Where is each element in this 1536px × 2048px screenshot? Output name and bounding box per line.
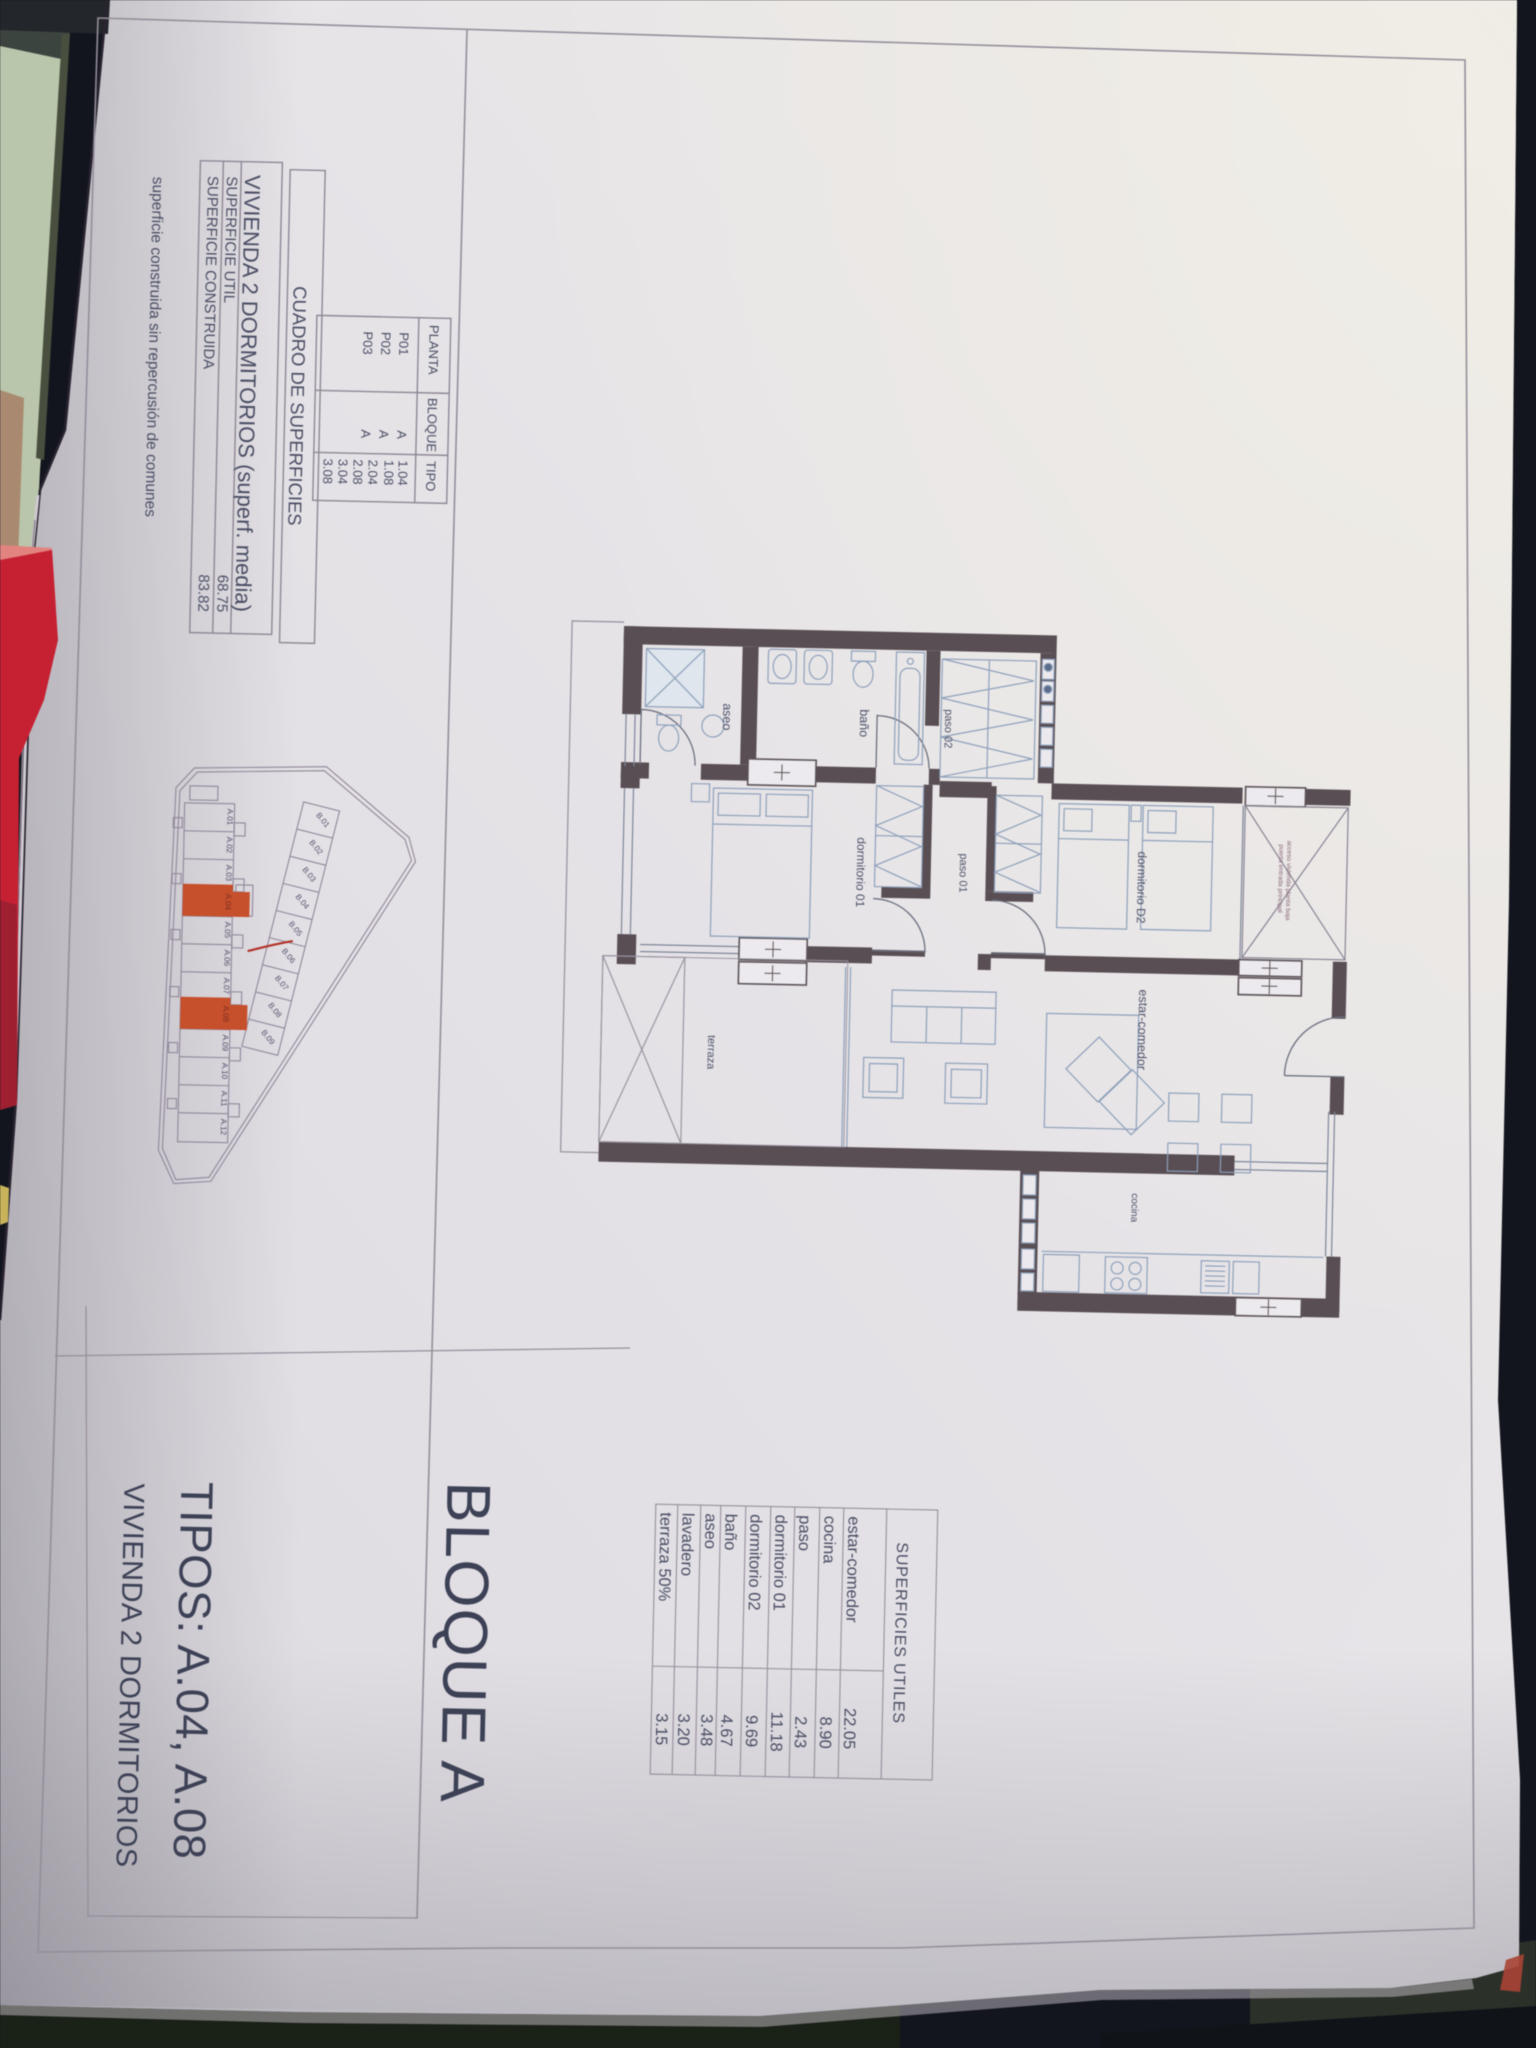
svg-text:TIPOS: A.04, A.08: TIPOS: A.04, A.08 — [164, 1481, 223, 1860]
svg-text:A.09: A.09 — [220, 1035, 229, 1052]
svg-text:A: A — [358, 429, 373, 438]
svg-text:A.05: A.05 — [223, 922, 232, 939]
svg-text:BLOQUE A: BLOQUE A — [427, 1481, 503, 1804]
svg-text:SUPERFICIE UTIL: SUPERFICIE UTIL — [220, 176, 240, 303]
svg-text:3.08: 3.08 — [320, 458, 336, 484]
svg-text:2.43: 2.43 — [791, 1716, 810, 1748]
svg-text:3.48: 3.48 — [697, 1714, 716, 1746]
svg-text:baño: baño — [857, 709, 872, 737]
svg-text:PLANTA: PLANTA — [426, 325, 442, 375]
svg-text:dormitorio 01: dormitorio 01 — [770, 1515, 790, 1612]
svg-text:lavadero: lavadero — [677, 1513, 696, 1577]
svg-text:baño: baño — [721, 1514, 740, 1551]
svg-text:A.01: A.01 — [225, 809, 234, 826]
svg-text:83.82: 83.82 — [194, 574, 212, 612]
svg-text:A: A — [376, 430, 391, 439]
svg-text:estar-comedor: estar-comedor — [1135, 989, 1151, 1070]
svg-text:estar-comedor: estar-comedor — [842, 1516, 862, 1623]
svg-text:dormitorio 01: dormitorio 01 — [853, 837, 869, 908]
svg-text:A.07: A.07 — [222, 978, 231, 995]
svg-text:9.69: 9.69 — [742, 1715, 761, 1747]
svg-text:paso: paso — [795, 1515, 814, 1551]
svg-text:3.04: 3.04 — [335, 459, 351, 485]
svg-text:A.06: A.06 — [222, 950, 231, 967]
svg-text:paso 02: paso 02 — [941, 709, 954, 748]
svg-text:3.15: 3.15 — [652, 1713, 671, 1745]
svg-text:dormitorio D2: dormitorio D2 — [1134, 851, 1150, 924]
svg-text:dormitorio 02: dormitorio 02 — [745, 1514, 765, 1611]
svg-text:A.10: A.10 — [220, 1063, 229, 1080]
svg-text:A.12: A.12 — [219, 1119, 228, 1136]
svg-text:terraza 50%: terraza 50% — [655, 1512, 675, 1602]
svg-text:8.90: 8.90 — [816, 1716, 835, 1748]
svg-text:A.02: A.02 — [225, 837, 234, 854]
svg-text:2.08: 2.08 — [350, 459, 366, 485]
svg-text:4.67: 4.67 — [717, 1714, 736, 1746]
svg-text:paso 01: paso 01 — [956, 853, 969, 892]
svg-text:P02: P02 — [378, 332, 394, 355]
svg-text:A: A — [394, 430, 409, 439]
svg-text:2.04: 2.04 — [365, 460, 381, 486]
svg-text:BLOQUE: BLOQUE — [424, 398, 440, 453]
svg-text:A.08: A.08 — [221, 1006, 230, 1023]
svg-text:A.04: A.04 — [223, 894, 232, 911]
svg-text:cocina: cocina — [1128, 1193, 1140, 1223]
svg-text:cocina: cocina — [820, 1516, 839, 1565]
svg-text:aseo: aseo — [701, 1513, 720, 1549]
svg-text:terraza: terraza — [704, 1035, 717, 1070]
svg-text:A.03: A.03 — [224, 865, 233, 882]
svg-text:22.05: 22.05 — [840, 1708, 859, 1750]
svg-text:P03: P03 — [360, 331, 376, 354]
svg-text:3.20: 3.20 — [674, 1713, 693, 1745]
svg-text:P01: P01 — [396, 332, 412, 355]
svg-text:TIPO: TIPO — [423, 461, 439, 492]
svg-text:1.08: 1.08 — [381, 460, 397, 486]
svg-text:A.11: A.11 — [219, 1091, 228, 1108]
svg-text:11.18: 11.18 — [767, 1711, 786, 1751]
svg-text:aseo: aseo — [720, 703, 735, 730]
svg-text:68.75: 68.75 — [213, 575, 231, 613]
